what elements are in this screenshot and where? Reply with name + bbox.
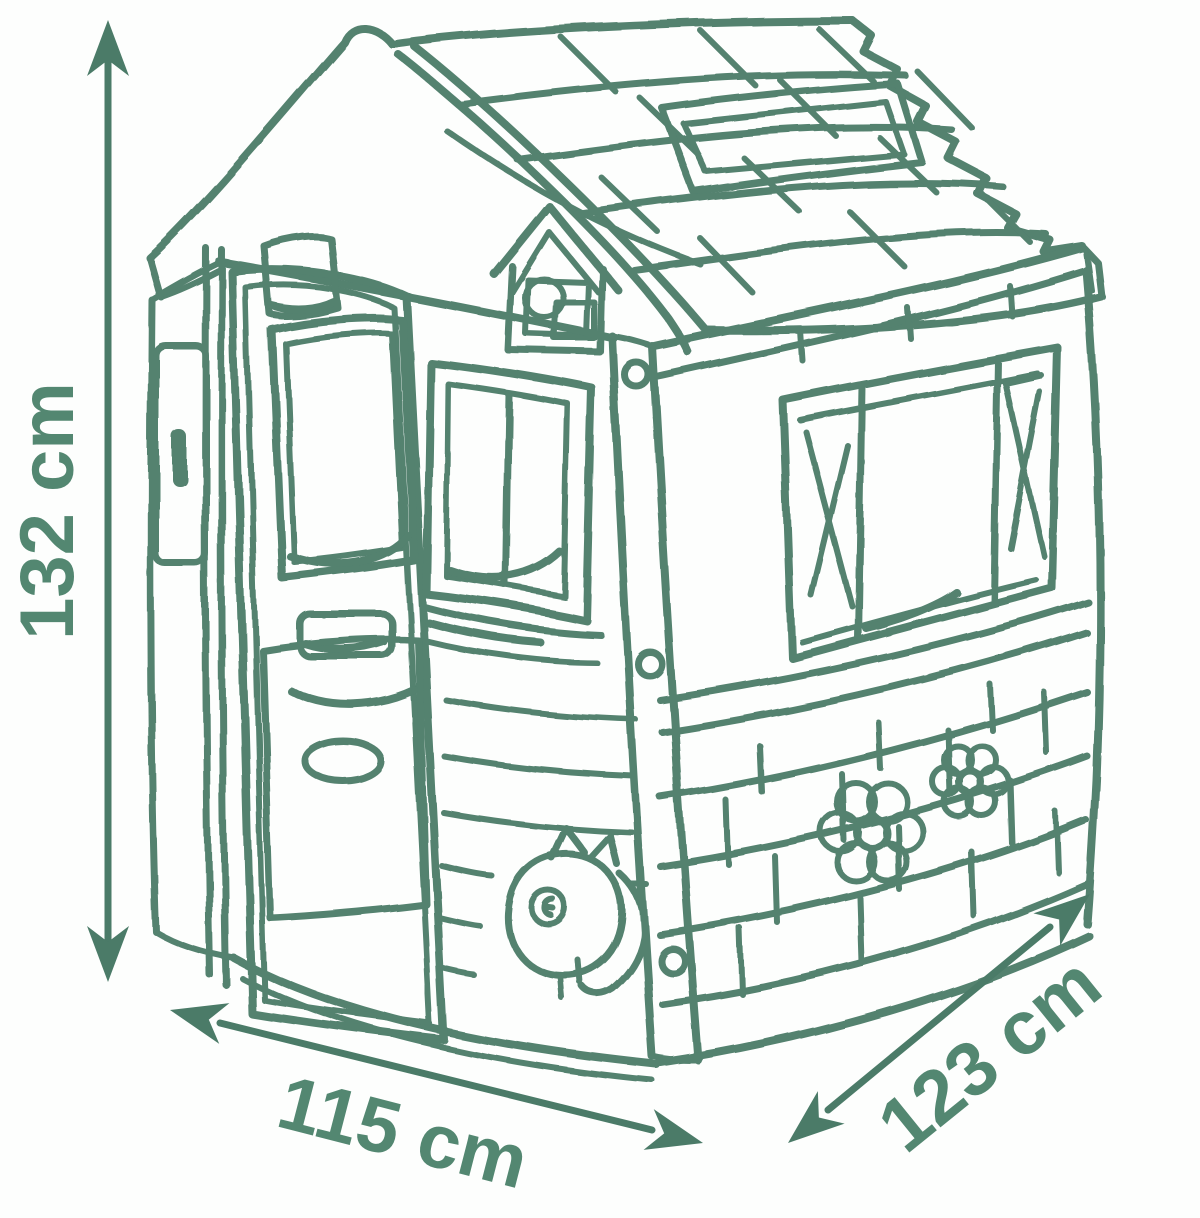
cat-figure	[508, 828, 644, 998]
arrowhead-left-icon	[165, 990, 229, 1044]
dimension-diagram: 132 cm 115 cm 123 cm	[0, 0, 1200, 1200]
rivet	[638, 652, 662, 676]
side-window	[783, 348, 1058, 658]
rivet	[660, 948, 684, 972]
rivet	[624, 362, 648, 386]
door	[232, 236, 444, 1040]
arrowhead-right-icon	[644, 1109, 708, 1163]
door-handle	[305, 741, 381, 781]
roof	[150, 20, 1101, 352]
front-window	[422, 362, 600, 662]
height-dimension-label: 132 cm	[2, 351, 94, 671]
shutter-handle	[172, 430, 187, 486]
